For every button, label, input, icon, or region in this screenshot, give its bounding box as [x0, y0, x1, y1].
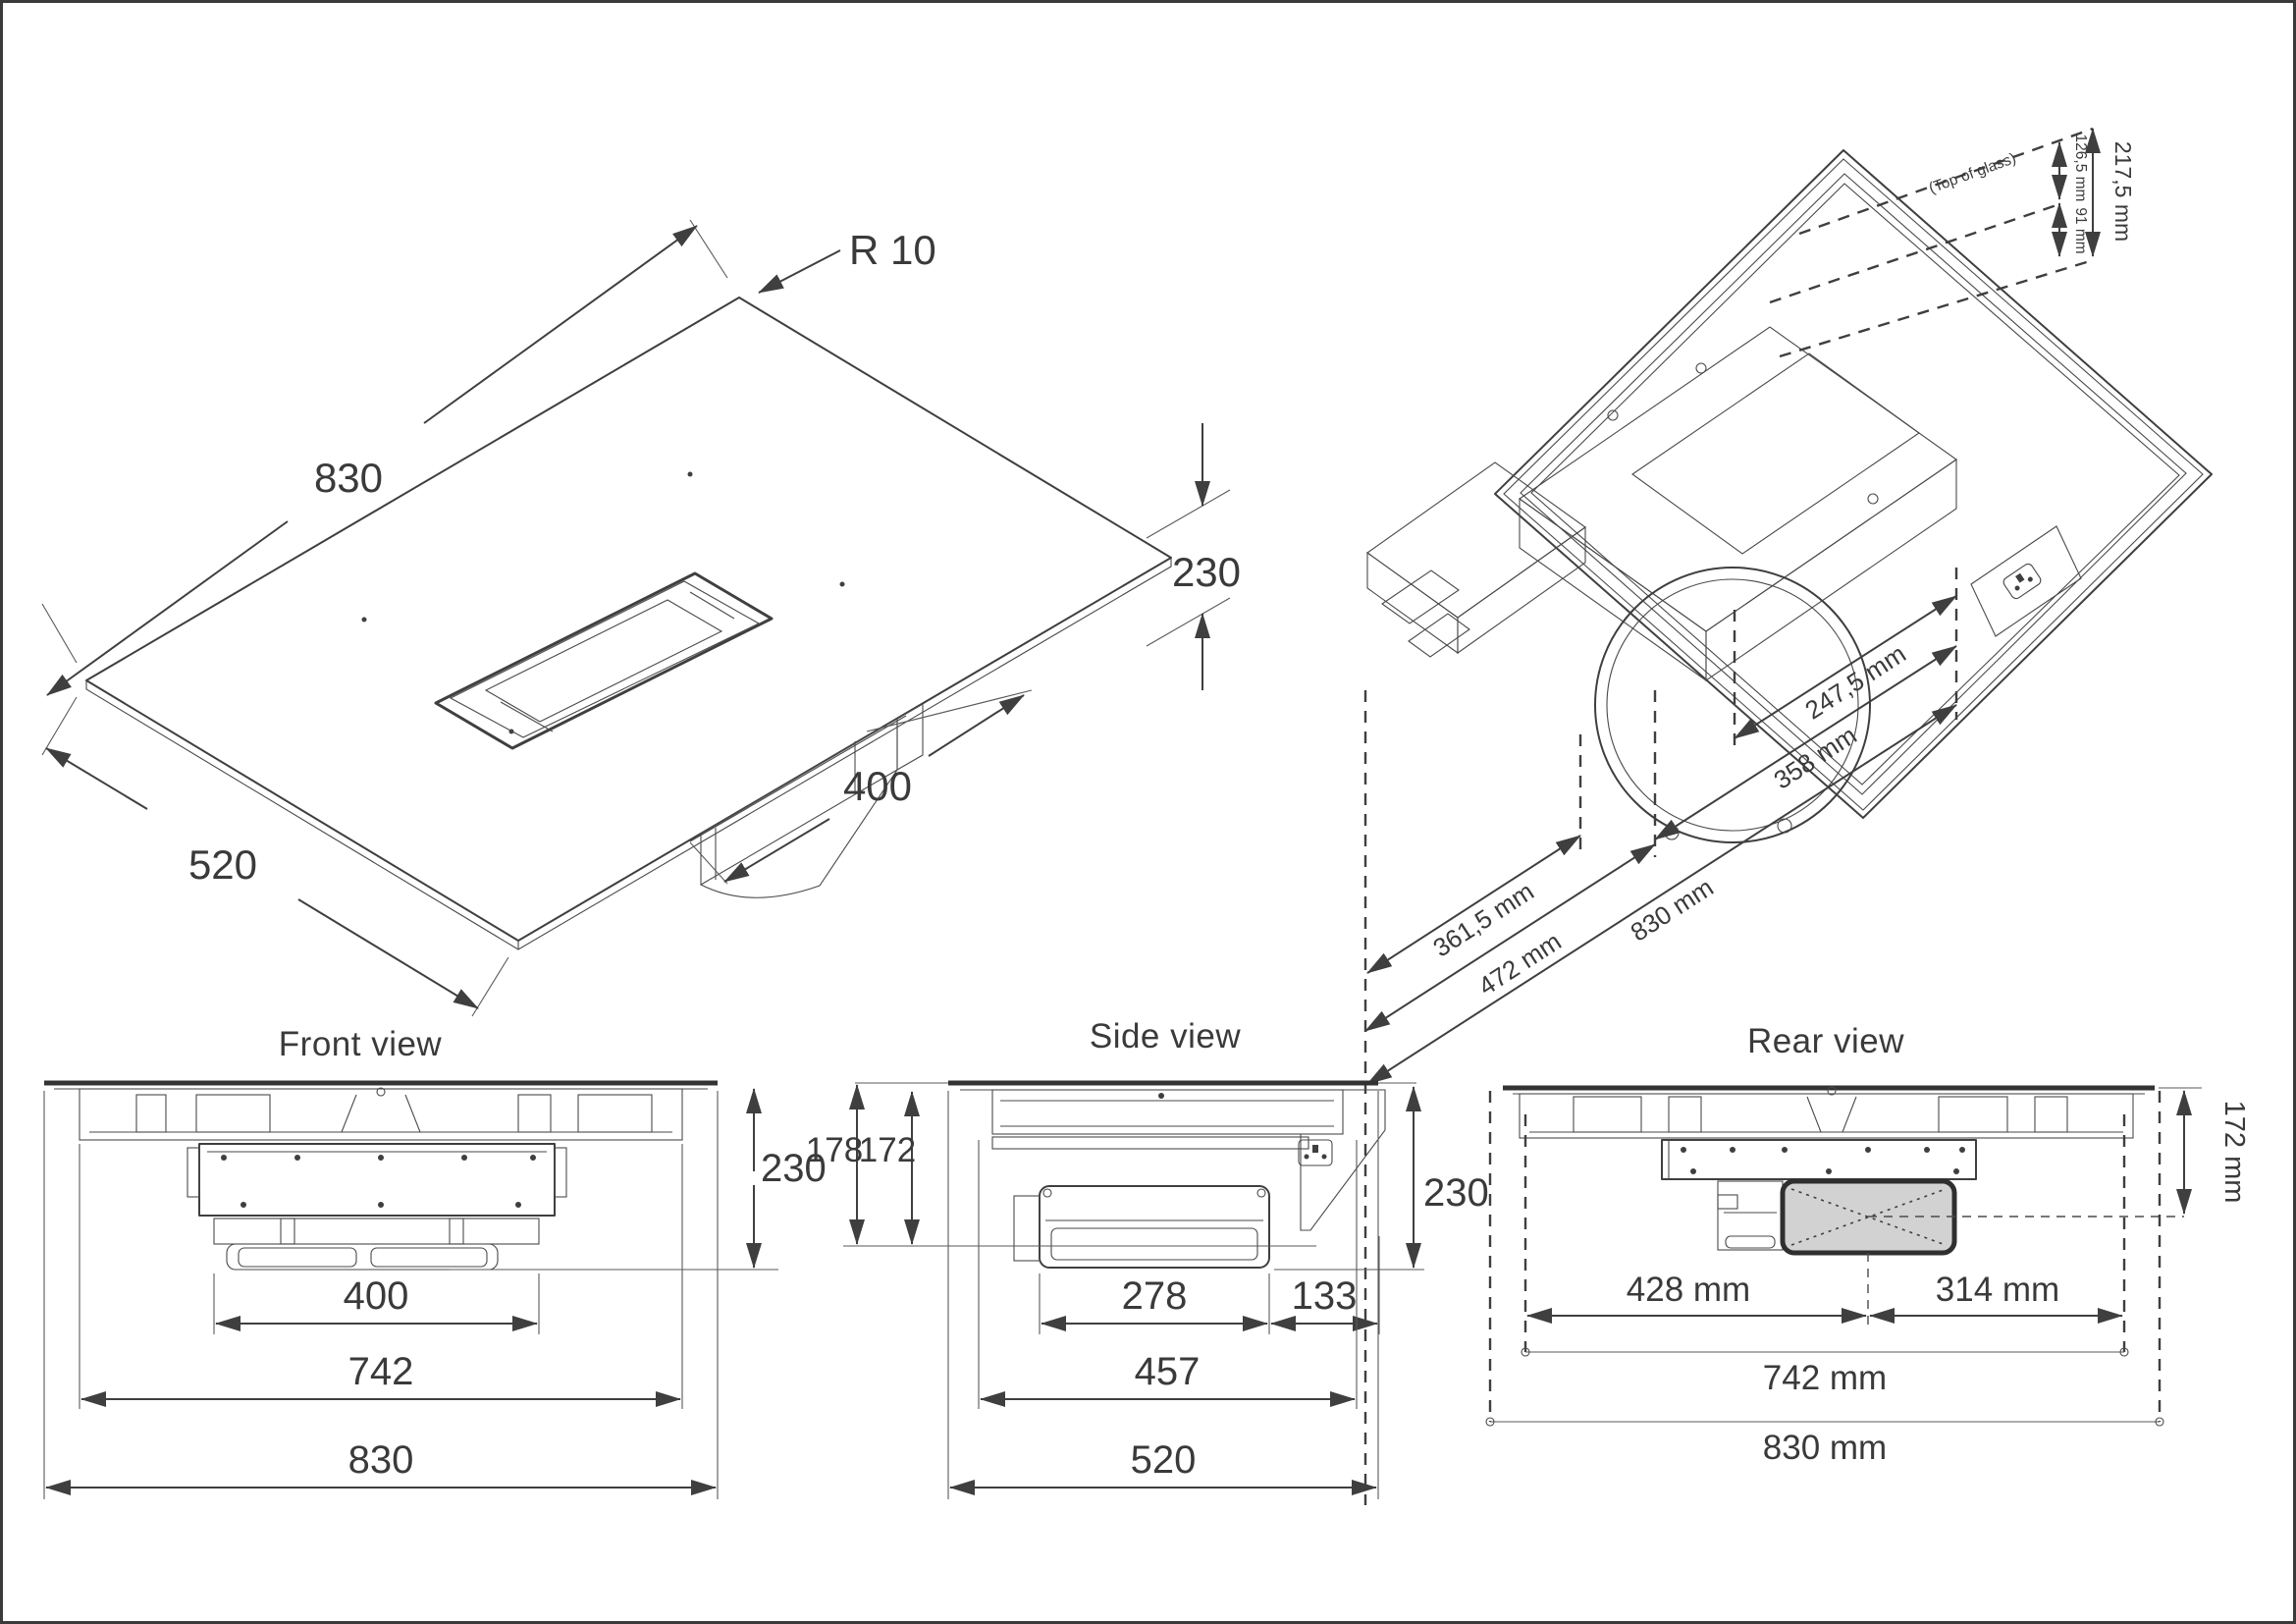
- front-view-title: Front view: [279, 1025, 443, 1063]
- isometric-bottom-view: 217,5 mm 126,5 mm 91 mm (Top of glass) 3…: [1365, 129, 2212, 1505]
- front-dim-vent-width: 400: [214, 1273, 539, 1334]
- side-dim-rear-gap: 133: [1271, 1236, 1379, 1334]
- dim-label-472: 472 mm: [1473, 926, 1567, 1001]
- side-dim-278: 278: [1122, 1274, 1188, 1318]
- isometric-top-view: 830 520 400 230 R 10: [3, 3, 1241, 1016]
- downdraft-grille: [3, 3, 772, 748]
- dim-heights-top-right: 217,5 mm 126,5 mm 91 mm (Top of glass): [1927, 129, 2136, 256]
- side-rear-bracket: [1299, 1090, 1385, 1230]
- dim-label-520: 520: [188, 841, 257, 888]
- dim-iso-depth: 520: [42, 697, 508, 1016]
- side-dim-133: 133: [1292, 1274, 1358, 1318]
- side-view-title: Side view: [1090, 1017, 1242, 1056]
- dim-label-230: 230: [1172, 549, 1241, 595]
- front-dim-400: 400: [344, 1274, 409, 1318]
- rear-dim-duct-position: 428 mm 314 mm: [1527, 1271, 2122, 1316]
- side-dim-172: 172: [859, 1131, 916, 1169]
- rear-dim-314: 314 mm: [1936, 1271, 2059, 1309]
- side-dim-230: 230: [1423, 1171, 1489, 1215]
- dim-label-247-5: 247,5 mm: [1799, 638, 1910, 725]
- dim-label-217-5: 217,5 mm: [2110, 141, 2136, 242]
- dim-label-91: 91 mm: [2072, 207, 2089, 253]
- terminal-block: [1382, 570, 1459, 623]
- cooking-zone-dots: [362, 472, 845, 734]
- rear-dim-742: 742 mm: [1763, 1359, 1887, 1397]
- side-casing: [992, 1090, 1343, 1149]
- dim-label-r10: R 10: [849, 227, 936, 273]
- dim-iso-height: 230: [1147, 423, 1241, 690]
- front-dim-742: 742: [348, 1350, 414, 1393]
- rear-dim-172: 172 mm: [2218, 1101, 2250, 1204]
- front-dim-830: 830: [348, 1438, 414, 1482]
- note-top-of-glass: (Top of glass): [1927, 150, 2018, 197]
- dim-label-830: 830: [314, 455, 383, 501]
- front-intake-assembly: [214, 1218, 539, 1270]
- side-dim-178: 178: [806, 1131, 863, 1169]
- front-vent-grilles: [136, 1088, 652, 1132]
- front-view: Front view: [44, 1025, 827, 1499]
- front-chassis-box: [187, 1144, 566, 1216]
- dim-iso-vent-length: 400: [690, 690, 1032, 884]
- side-dim-total-height: 230: [1414, 1087, 1489, 1268]
- drawing-canvas: 830 520 400 230 R 10: [3, 3, 2296, 1624]
- rear-casing: [1520, 1094, 2133, 1138]
- rear-view-title: Rear view: [1747, 1022, 1904, 1060]
- side-view: Side view: [806, 1017, 1489, 1499]
- technical-drawing-sheet: 830 520 400 230 R 10: [0, 0, 2296, 1624]
- rear-view: Rear view: [1486, 1022, 2250, 1467]
- power-socket-side-icon: [1299, 1140, 1332, 1165]
- rear-dim-duct-height: 172 mm: [2159, 1088, 2250, 1214]
- dim-iso-length: 830: [42, 220, 727, 695]
- rear-dim-428: 428 mm: [1627, 1271, 1750, 1309]
- rear-motor-bracket: [1718, 1181, 1783, 1250]
- dim-corner-radius: R 10: [759, 227, 936, 293]
- front-dim-height: 230: [754, 1089, 827, 1268]
- side-fan-box: [1014, 1186, 1269, 1268]
- glass-outline-bottom: [1495, 150, 2212, 818]
- dim-label-126-5: 126,5 mm: [2072, 135, 2089, 202]
- glass-inner-rim: [1521, 174, 2186, 794]
- side-dim-fan-depth: 278: [1040, 1273, 1269, 1334]
- dim-label-400: 400: [843, 763, 912, 809]
- rear-chassis-box: [1662, 1140, 1976, 1179]
- glass-edge-thickness: [86, 558, 1171, 949]
- side-dim-heights-left: 178 172: [806, 1085, 916, 1244]
- rear-dim-830: 830 mm: [1763, 1429, 1887, 1467]
- side-dim-457: 457: [1135, 1350, 1201, 1393]
- dim-bottom-diagonals: 361,5 mm 472 mm 830 mm 358 mm 247,5 mm: [1365, 596, 1956, 1084]
- side-dim-520: 520: [1131, 1438, 1197, 1482]
- power-socket-icon: [2002, 563, 2043, 601]
- underside-chassis: [1367, 327, 1956, 680]
